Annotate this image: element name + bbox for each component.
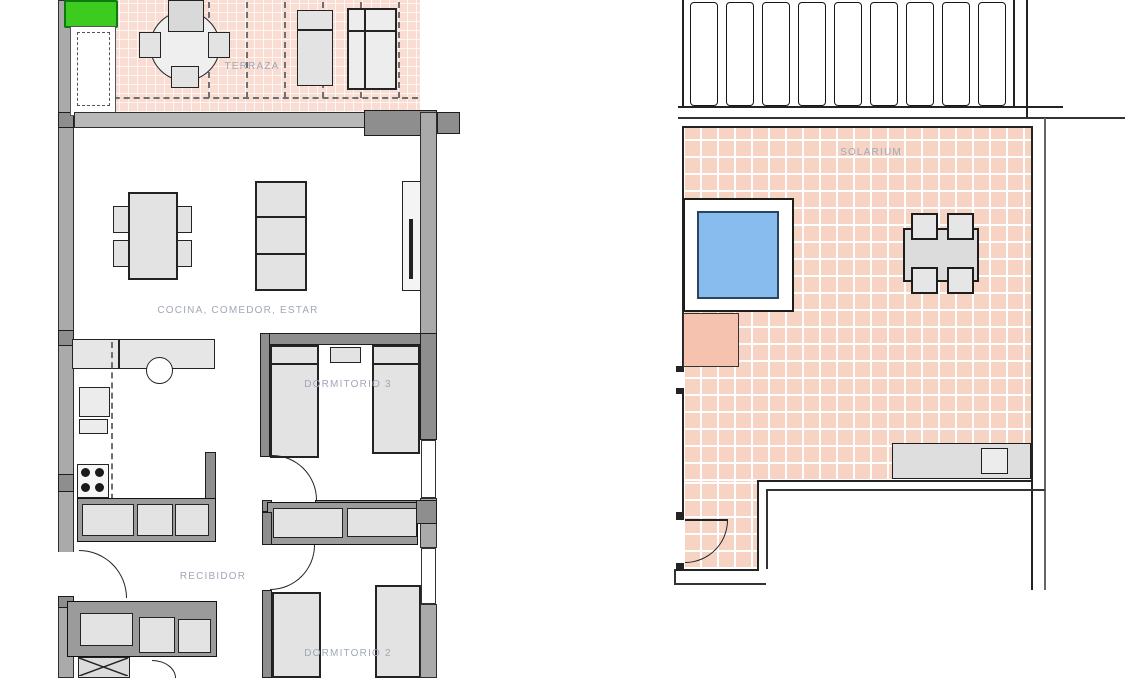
solarium-border-right [1031,126,1033,590]
bedroom2-wardrobe-section [347,508,417,537]
pergola-slat [726,2,754,106]
solarium-plan: SOLARIUM [560,0,1125,678]
sofa-cushion-line-2 [257,253,305,255]
pergola-beam-upper [678,106,1063,108]
fridge [79,387,110,417]
solarium-opening-jamb [676,388,684,394]
bedroom2-bed-right [375,585,421,678]
bedroom3-label: DORMITORIO 3 [304,379,392,390]
pergola-left-frame [682,0,684,107]
bedroom2-door-arc [270,545,315,590]
stove-burner-3 [81,483,90,492]
stove-burner-2 [95,468,104,477]
pergola-slat [978,2,1006,106]
terrace-table-top [168,0,204,32]
hall-wardrobe-1-section [175,504,209,536]
bedroom3-window [421,440,436,498]
terrace-dashed-line [398,2,400,98]
right-exterior-wall-mid [420,333,437,440]
bedroom2-wall-stub-upper [262,512,272,545]
bedroom2-wall-stub-lower [262,590,272,678]
bedroom2-window [421,548,436,604]
solarium-step-vertical-inner [766,489,768,569]
dining-table [128,192,178,280]
terrace-living-wall [74,112,368,128]
ground-floor-plan: TERRAZA COCINA, COMEDOR, ESTAR DORMITORI… [0,0,560,678]
solarium-door-jamb-bottom [676,563,684,571]
stove-burner-4 [95,483,104,492]
sofa-cushion-line-1 [257,216,305,218]
solarium-counter [892,443,1031,479]
bedroom3-door-arc [272,455,317,500]
solarium-label: SOLARIUM [840,147,902,158]
solarium-chair-1 [911,213,938,240]
solarium-parapet-notch [674,569,676,584]
bedroom2-label: DORMITORIO 2 [304,648,392,659]
bedroom2-bed-left [272,592,321,678]
stove-burner-1 [81,468,90,477]
solarium-border-bottom-left [682,569,759,571]
terrace-dashed-line [246,2,248,98]
bathroom-door-arc [152,660,176,678]
pergola-slat [906,2,934,106]
wall-junction [58,474,74,492]
living-label: COCINA, COMEDOR, ESTAR [157,305,318,316]
lounge-chair-2 [347,8,397,90]
solarium-counter-sink [981,448,1008,474]
floorplan-canvas: TERRAZA COCINA, COMEDOR, ESTAR DORMITORI… [0,0,1125,678]
tv-screen [409,219,413,279]
bedroom3-bed-right-pillow-line [374,363,418,365]
entry-door-opening [57,552,75,596]
pool-water [697,211,779,299]
niche-dashed-outline [77,32,110,106]
solarium-border-left-mid [682,394,684,520]
pergola-right-frame-inner [1013,0,1015,107]
terrace-dashed-boundary [84,97,418,99]
planter-box [64,0,118,28]
kitchen-counter-divider [118,340,120,368]
bedroom3-top-wall [262,333,437,345]
lounge-chair-1-divider [298,29,332,31]
solarium-chair-3 [911,267,938,294]
hall-wardrobe-1-section [137,504,173,536]
hall-label: RECIBIDOR [180,571,246,582]
solarium-step-vertical [757,480,759,569]
solarium-border-bottom-right [757,480,1033,482]
solarium-outer-right-line [1044,118,1046,590]
right-exterior-wall-upper [420,112,437,340]
bedroom3-bed-left [270,345,319,458]
terrace-dashed-line [284,2,286,98]
bedroom2-wardrobe-section [273,508,343,538]
solarium-border-top [682,126,1033,128]
terrace-chair-left [139,32,161,58]
right-exterior-wall-lower2 [420,604,437,678]
sofa [255,181,307,291]
right-wall-corner-block [416,500,437,524]
pergola-beam-lower [678,117,1125,119]
bedroom3-nightstand [330,347,361,363]
kitchen-cabinet [79,419,108,434]
shower-tray [78,657,130,678]
pergola-slat [834,2,862,106]
lounge-chair-1 [297,10,333,86]
exterior-corner-block [437,112,460,134]
terrace-chair-bottom [171,66,199,88]
hall-wardrobe-2-section [178,619,211,653]
kitchen-counter [72,339,215,369]
lounge-chair-2-divider [349,30,395,32]
bedroom3-left-wall [260,333,270,457]
solarium-chair-2 [947,213,974,240]
entry-door-arc [79,550,127,598]
terrace-label: TERRAZA [224,61,279,72]
terrace-chair-right [208,32,230,58]
pergola-slat [870,2,898,106]
shower-cross-icon [79,658,128,676]
hall-wardrobe-1-section [82,504,134,536]
solarium-door-jamb-top [676,512,684,520]
bedroom3-bed-left-pillow-line [272,363,317,365]
bedroom3-bed-right [372,345,420,454]
lounge-chair-2-rail [364,10,366,88]
solarium-parapet-line-left [674,583,766,585]
kitchen-zone-dashed-line [111,342,113,520]
hall-wardrobe-2-section [80,613,133,646]
pergola-slat [798,2,826,106]
pergola-slat [762,2,790,106]
pool-equipment-box [683,313,739,367]
hall-wardrobe-2-section [139,617,175,653]
solarium-parapet-line-right [766,489,1045,491]
solarium-chair-4 [947,267,974,294]
pergola-slat [690,2,718,106]
pergola-slat [942,2,970,106]
kitchen-sink [146,357,173,384]
pergola-right-frame-outer [1026,0,1028,118]
